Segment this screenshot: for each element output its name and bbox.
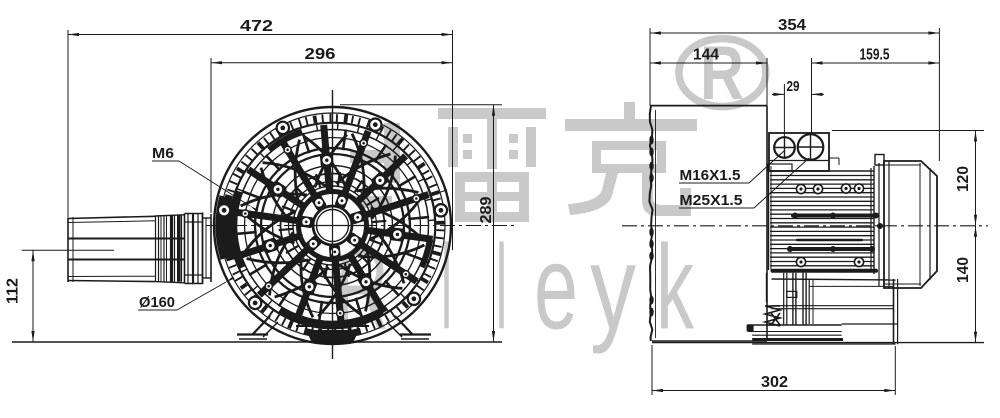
svg-text:302: 302	[761, 374, 788, 391]
svg-text:k: k	[656, 221, 695, 355]
svg-text:472: 472	[240, 18, 273, 35]
svg-text:144: 144	[693, 47, 719, 64]
svg-text:140: 140	[955, 257, 972, 283]
svg-text:M25X1.5: M25X1.5	[680, 193, 743, 209]
svg-text:M6: M6	[152, 145, 174, 162]
svg-text:Ø160: Ø160	[139, 294, 175, 311]
svg-text:29: 29	[787, 79, 800, 95]
svg-text:354: 354	[778, 17, 806, 34]
svg-text:e: e	[534, 221, 578, 355]
svg-text:289: 289	[478, 196, 495, 223]
svg-text:M16X1.5: M16X1.5	[680, 168, 741, 184]
svg-text:112: 112	[5, 278, 22, 304]
svg-text:120: 120	[955, 166, 972, 192]
svg-text:R: R	[700, 31, 744, 116]
svg-text:l: l	[496, 221, 507, 355]
svg-text:296: 296	[305, 46, 336, 63]
svg-text:y: y	[590, 221, 636, 355]
svg-text:159.5: 159.5	[860, 47, 890, 64]
